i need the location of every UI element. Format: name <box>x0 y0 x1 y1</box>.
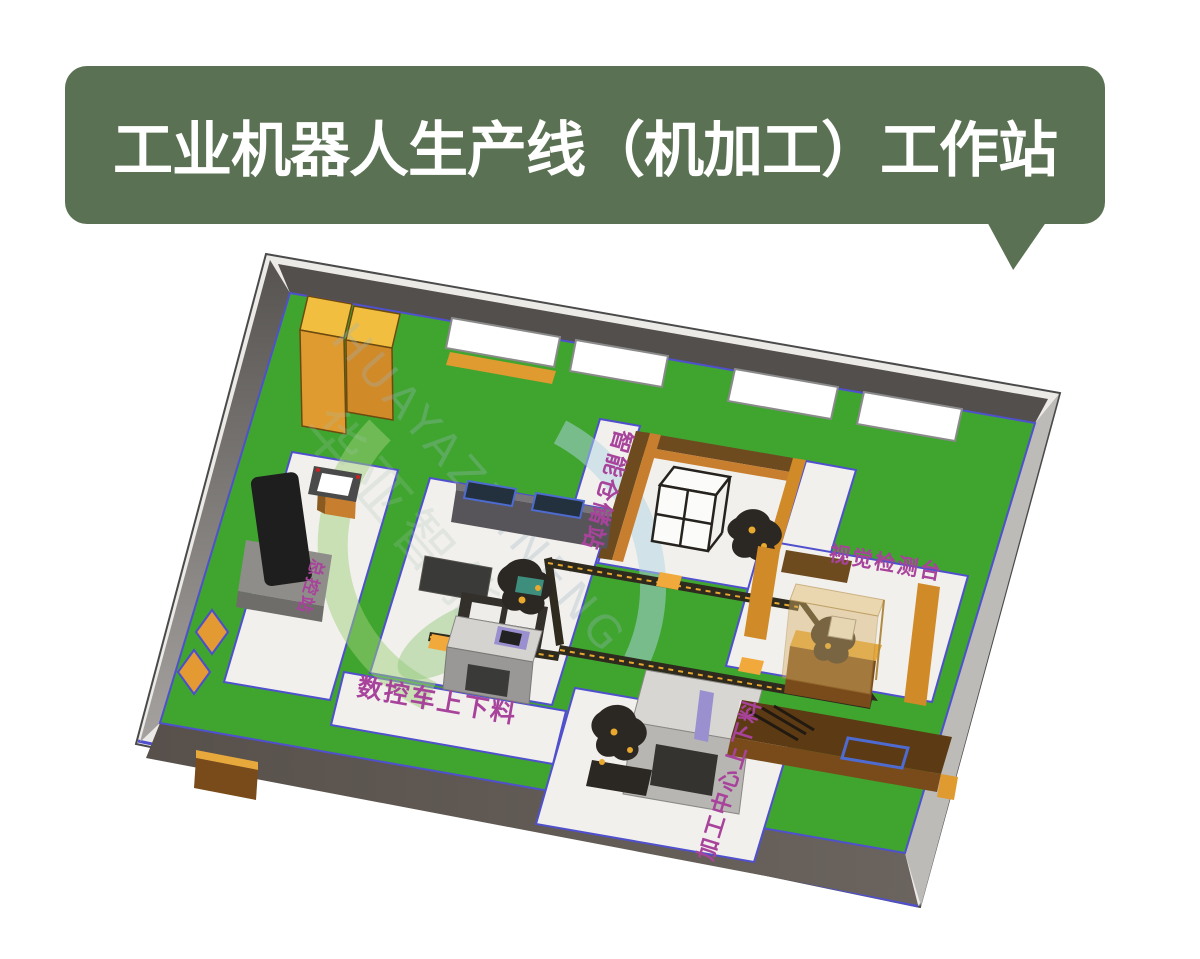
glass-case <box>782 584 884 694</box>
workshop-scene: HUAYAZHINENG 华亚智能 <box>0 0 1200 959</box>
poster: { "banner": { "title": "工业机器人生产线（机加工）工作站… <box>0 0 1200 959</box>
